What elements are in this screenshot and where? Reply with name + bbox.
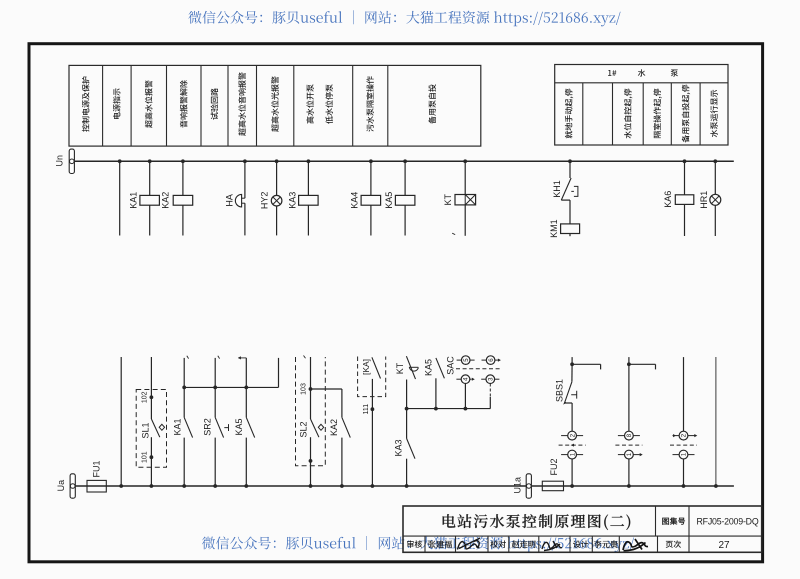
svg-text:U1a: U1a bbox=[513, 477, 523, 494]
svg-text:KA2: KA2 bbox=[161, 192, 171, 209]
svg-text:SBS1: SBS1 bbox=[555, 379, 565, 402]
svg-text:HA: HA bbox=[225, 194, 235, 207]
svg-text:103: 103 bbox=[300, 383, 307, 395]
svg-text:SL2: SL2 bbox=[298, 421, 308, 437]
svg-text:Un: Un bbox=[55, 155, 65, 167]
svg-text:KM1: KM1 bbox=[549, 219, 559, 238]
svg-text:KA3: KA3 bbox=[394, 439, 404, 456]
svg-text:KT: KT bbox=[395, 362, 405, 374]
svg-text:KA4: KA4 bbox=[349, 192, 359, 209]
svg-text:HY2: HY2 bbox=[260, 192, 270, 210]
svg-text:KA2: KA2 bbox=[329, 419, 339, 436]
svg-text:RFJ05-2009-DQ: RFJ05-2009-DQ bbox=[697, 516, 759, 526]
svg-text:FU2: FU2 bbox=[549, 458, 559, 475]
svg-text:102: 102 bbox=[141, 391, 148, 403]
svg-text:KA3: KA3 bbox=[287, 192, 297, 209]
svg-text:111: 111 bbox=[363, 404, 370, 415]
svg-text:SAC: SAC bbox=[446, 356, 456, 375]
svg-text:KA5: KA5 bbox=[423, 359, 433, 376]
svg-text:SL1: SL1 bbox=[140, 422, 150, 438]
svg-text:SR2: SR2 bbox=[203, 418, 213, 436]
svg-text:KT: KT bbox=[443, 193, 453, 205]
svg-text:KA5: KA5 bbox=[384, 192, 394, 209]
svg-text:KA5: KA5 bbox=[234, 418, 244, 435]
svg-text:27: 27 bbox=[718, 540, 730, 551]
svg-text:[KA]: [KA] bbox=[361, 359, 371, 375]
svg-text:FU1: FU1 bbox=[92, 460, 102, 477]
svg-text:KH1: KH1 bbox=[552, 180, 562, 198]
svg-text:KA1: KA1 bbox=[128, 192, 138, 209]
svg-text:HR1: HR1 bbox=[699, 191, 709, 209]
svg-text:KA1: KA1 bbox=[173, 418, 183, 435]
svg-text:KA6: KA6 bbox=[663, 191, 673, 208]
svg-text:101: 101 bbox=[141, 451, 148, 463]
svg-text:Ua: Ua bbox=[56, 480, 66, 492]
